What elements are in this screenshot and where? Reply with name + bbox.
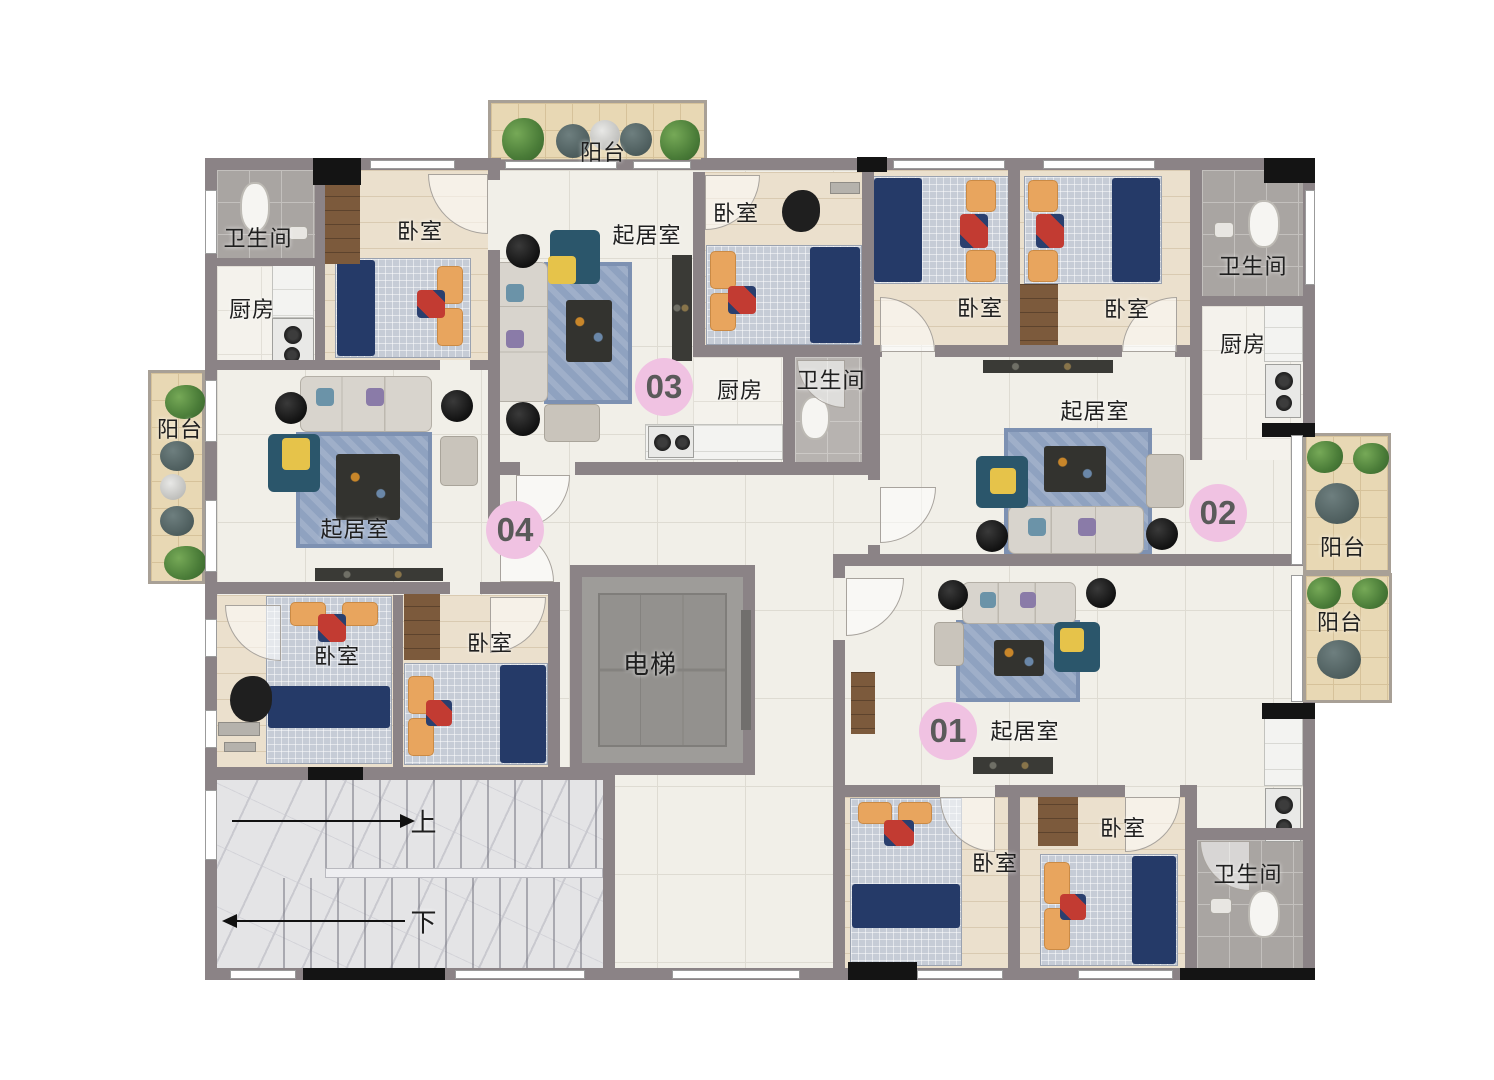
sofa-pillow bbox=[366, 388, 384, 406]
room-label-balcony-right-lower: 阳台 bbox=[1317, 605, 1363, 637]
window bbox=[205, 790, 217, 860]
room-label-balcony-right-upper: 阳台 bbox=[1320, 530, 1366, 562]
column bbox=[303, 968, 445, 980]
column bbox=[308, 767, 363, 780]
sink bbox=[1214, 222, 1234, 238]
side-chair bbox=[544, 404, 600, 442]
window bbox=[917, 970, 1003, 979]
bed-pillow bbox=[1028, 180, 1058, 212]
balcony-stool bbox=[160, 441, 194, 471]
plant-icon bbox=[1307, 441, 1343, 473]
bed-blanket bbox=[1112, 178, 1160, 282]
room-label-bathroom-unit01: 卫生间 bbox=[1213, 857, 1282, 889]
column bbox=[313, 158, 361, 185]
window bbox=[672, 970, 800, 979]
wall bbox=[1190, 170, 1202, 460]
side-table bbox=[506, 402, 540, 436]
stairs-up-arrow-line bbox=[232, 820, 400, 822]
side-table bbox=[938, 580, 968, 610]
side-table bbox=[1146, 518, 1178, 550]
wall bbox=[868, 545, 880, 554]
room-label-balcony-left: 阳台 bbox=[157, 412, 203, 444]
room-label-bedroom-unit02-1: 卧室 bbox=[957, 291, 1003, 323]
hall-cabinet bbox=[851, 672, 875, 734]
unit-badge-04: 04 bbox=[486, 501, 544, 559]
flag-cushion bbox=[960, 214, 988, 248]
elevator-door bbox=[741, 610, 751, 730]
bed-blanket bbox=[810, 247, 860, 343]
flag-cushion bbox=[1060, 894, 1086, 920]
wall bbox=[575, 462, 880, 475]
wall bbox=[470, 360, 488, 370]
window bbox=[205, 619, 217, 657]
room-label-bedroom-unit04-2: 卧室 bbox=[314, 639, 360, 671]
side-chair bbox=[440, 436, 478, 486]
sofa-pillow bbox=[506, 284, 524, 302]
sofa-pillow bbox=[1020, 592, 1036, 608]
bed-pillow bbox=[342, 602, 378, 626]
beanbag bbox=[230, 676, 272, 722]
throw-blanket bbox=[990, 468, 1016, 494]
window bbox=[205, 710, 217, 748]
column bbox=[1180, 968, 1315, 980]
wall bbox=[1185, 797, 1197, 968]
toilet bbox=[1248, 890, 1280, 938]
wall bbox=[548, 583, 560, 767]
side-table bbox=[275, 392, 307, 424]
wall bbox=[783, 357, 795, 462]
wall bbox=[1008, 170, 1020, 345]
room-label-bathroom-unit02: 卫生间 bbox=[1218, 249, 1287, 281]
sink bbox=[1210, 898, 1232, 914]
flag-cushion bbox=[728, 286, 756, 314]
desk bbox=[218, 722, 260, 736]
sliding-door bbox=[1291, 575, 1303, 702]
sofa-pillow bbox=[980, 592, 996, 608]
window bbox=[1305, 190, 1315, 285]
window bbox=[893, 160, 1005, 169]
room-label-bedroom-unit04-1: 卧室 bbox=[397, 214, 443, 246]
bed-blanket bbox=[337, 260, 375, 356]
desk bbox=[224, 742, 256, 752]
room-label-kitchen-unit04: 厨房 bbox=[229, 292, 275, 324]
wall bbox=[833, 566, 845, 578]
bed-blanket bbox=[852, 884, 960, 928]
bed-blanket bbox=[874, 178, 922, 282]
tv-cabinet bbox=[672, 255, 692, 361]
wall bbox=[217, 258, 315, 266]
wall bbox=[205, 582, 450, 594]
unit-badge-02: 02 bbox=[1189, 484, 1247, 542]
wall bbox=[693, 345, 862, 357]
wall bbox=[500, 462, 520, 475]
wall bbox=[701, 158, 1315, 170]
sofa-pillow bbox=[1028, 518, 1046, 536]
beanbag bbox=[782, 190, 820, 232]
stairs-down-arrow-line bbox=[237, 920, 405, 922]
bed-pillow bbox=[710, 251, 736, 289]
window bbox=[205, 380, 217, 442]
window bbox=[230, 970, 296, 979]
sliding-door bbox=[1291, 435, 1303, 565]
tv-console bbox=[315, 568, 443, 581]
tv-console bbox=[983, 360, 1113, 373]
wardrobe bbox=[1038, 790, 1078, 846]
room-label-living-unit02: 起居室 bbox=[1060, 394, 1129, 426]
coffee-table bbox=[336, 454, 400, 520]
stove bbox=[648, 426, 694, 458]
wall bbox=[488, 250, 500, 540]
throw-blanket bbox=[1060, 628, 1084, 652]
wall bbox=[315, 170, 325, 360]
wall bbox=[1197, 828, 1303, 840]
stove bbox=[1265, 364, 1301, 418]
throw-blanket bbox=[548, 256, 576, 284]
side-table bbox=[506, 234, 540, 268]
wall bbox=[995, 785, 1125, 797]
wall bbox=[1202, 296, 1303, 306]
room-label-bathroom-unit04: 卫生间 bbox=[223, 221, 292, 253]
kitchen-counter bbox=[1264, 300, 1303, 362]
window bbox=[1078, 970, 1173, 979]
coffee-table bbox=[1044, 446, 1106, 492]
wardrobe bbox=[404, 592, 440, 660]
stairs-down-arrow-head bbox=[222, 914, 237, 928]
wall bbox=[603, 775, 615, 968]
wall bbox=[1303, 702, 1315, 980]
stairs-down-label: 下 bbox=[410, 903, 437, 940]
wall bbox=[488, 170, 500, 180]
sliding-door bbox=[633, 161, 691, 169]
room-label-bedroom-unit04-3: 卧室 bbox=[467, 626, 513, 658]
room-label-kitchen-unit02: 厨房 bbox=[1220, 327, 1266, 359]
plant-icon bbox=[1353, 443, 1389, 474]
window bbox=[205, 500, 217, 572]
room-label-living-unit03: 起居室 bbox=[612, 218, 681, 250]
sofa-pillow bbox=[316, 388, 334, 406]
wall bbox=[205, 360, 440, 370]
throw-blanket bbox=[282, 438, 310, 470]
room-label-living-unit04: 起居室 bbox=[320, 512, 389, 544]
coffee-table bbox=[566, 300, 612, 362]
bed-blanket bbox=[500, 665, 546, 763]
flag-cushion bbox=[318, 614, 346, 642]
room-label-kitchen-unit03: 厨房 bbox=[717, 373, 763, 405]
wall bbox=[935, 345, 1122, 357]
room-label-balcony-top: 阳台 bbox=[580, 135, 626, 167]
balcony-stool bbox=[1317, 640, 1361, 679]
room-label-bathroom-unit03: 卫生间 bbox=[796, 363, 865, 395]
bed-blanket bbox=[1132, 856, 1176, 964]
room-label-living-unit01: 起居室 bbox=[990, 714, 1059, 746]
side-chair bbox=[934, 622, 964, 666]
unit-badge-01: 01 bbox=[919, 702, 977, 760]
column bbox=[857, 157, 887, 172]
tv-console bbox=[973, 757, 1053, 774]
wall bbox=[868, 357, 880, 480]
window bbox=[370, 160, 455, 169]
sofa-pillow bbox=[506, 330, 524, 348]
window bbox=[205, 190, 217, 254]
side-chair bbox=[1146, 454, 1184, 508]
plant-icon bbox=[502, 118, 544, 162]
side-table bbox=[976, 520, 1008, 552]
side-table bbox=[441, 390, 473, 422]
wall bbox=[205, 767, 615, 780]
flag-cushion bbox=[426, 700, 452, 726]
wall bbox=[393, 595, 403, 767]
room-label-bedroom-unit01-1: 卧室 bbox=[972, 846, 1018, 878]
desk bbox=[830, 182, 860, 194]
side-table bbox=[1086, 578, 1116, 608]
sofa-pillow bbox=[1078, 518, 1096, 536]
coffee-table bbox=[994, 640, 1044, 676]
floor-plan: 卫生间 卧室 厨房 阳台 起居室 卧室 卧室 阳台 起居室 卧室 厨房 卫生间 … bbox=[0, 0, 1494, 1080]
plant-icon bbox=[660, 120, 700, 162]
column bbox=[848, 962, 917, 980]
stairs-up-label: 上 bbox=[410, 803, 437, 840]
unit-badge-03: 03 bbox=[635, 358, 693, 416]
toilet bbox=[1248, 200, 1280, 248]
wall bbox=[833, 554, 1303, 566]
flag-cushion bbox=[884, 820, 914, 846]
window bbox=[455, 970, 585, 979]
flag-cushion bbox=[417, 290, 445, 318]
stair-treads-lower bbox=[283, 878, 603, 968]
column bbox=[1262, 703, 1315, 719]
bed-pillow bbox=[966, 180, 996, 212]
kitchen-counter bbox=[272, 262, 314, 318]
balcony-stool bbox=[160, 506, 194, 536]
room-label-bedroom-unit01-2: 卧室 bbox=[1100, 811, 1146, 843]
wardrobe bbox=[1020, 284, 1058, 352]
stair-landing bbox=[325, 868, 603, 878]
flag-cushion bbox=[1036, 214, 1064, 248]
elevator-label: 电梯 bbox=[623, 645, 677, 682]
wall bbox=[1008, 797, 1020, 968]
window bbox=[1043, 160, 1155, 169]
wall bbox=[833, 640, 845, 968]
bed-pillow bbox=[966, 250, 996, 282]
wall bbox=[845, 785, 940, 797]
plant-icon bbox=[164, 546, 206, 580]
room-label-bedroom-unit03: 卧室 bbox=[713, 196, 759, 228]
room-label-bedroom-unit02-2: 卧室 bbox=[1104, 292, 1150, 324]
column bbox=[1262, 423, 1315, 437]
column bbox=[1264, 158, 1315, 183]
bed-blanket bbox=[268, 686, 390, 728]
wall bbox=[693, 172, 705, 345]
balcony-table bbox=[160, 474, 186, 500]
balcony-stool bbox=[1315, 483, 1359, 524]
bed-pillow bbox=[1028, 250, 1058, 282]
kitchen-counter bbox=[1264, 716, 1303, 786]
wall bbox=[1180, 785, 1197, 797]
